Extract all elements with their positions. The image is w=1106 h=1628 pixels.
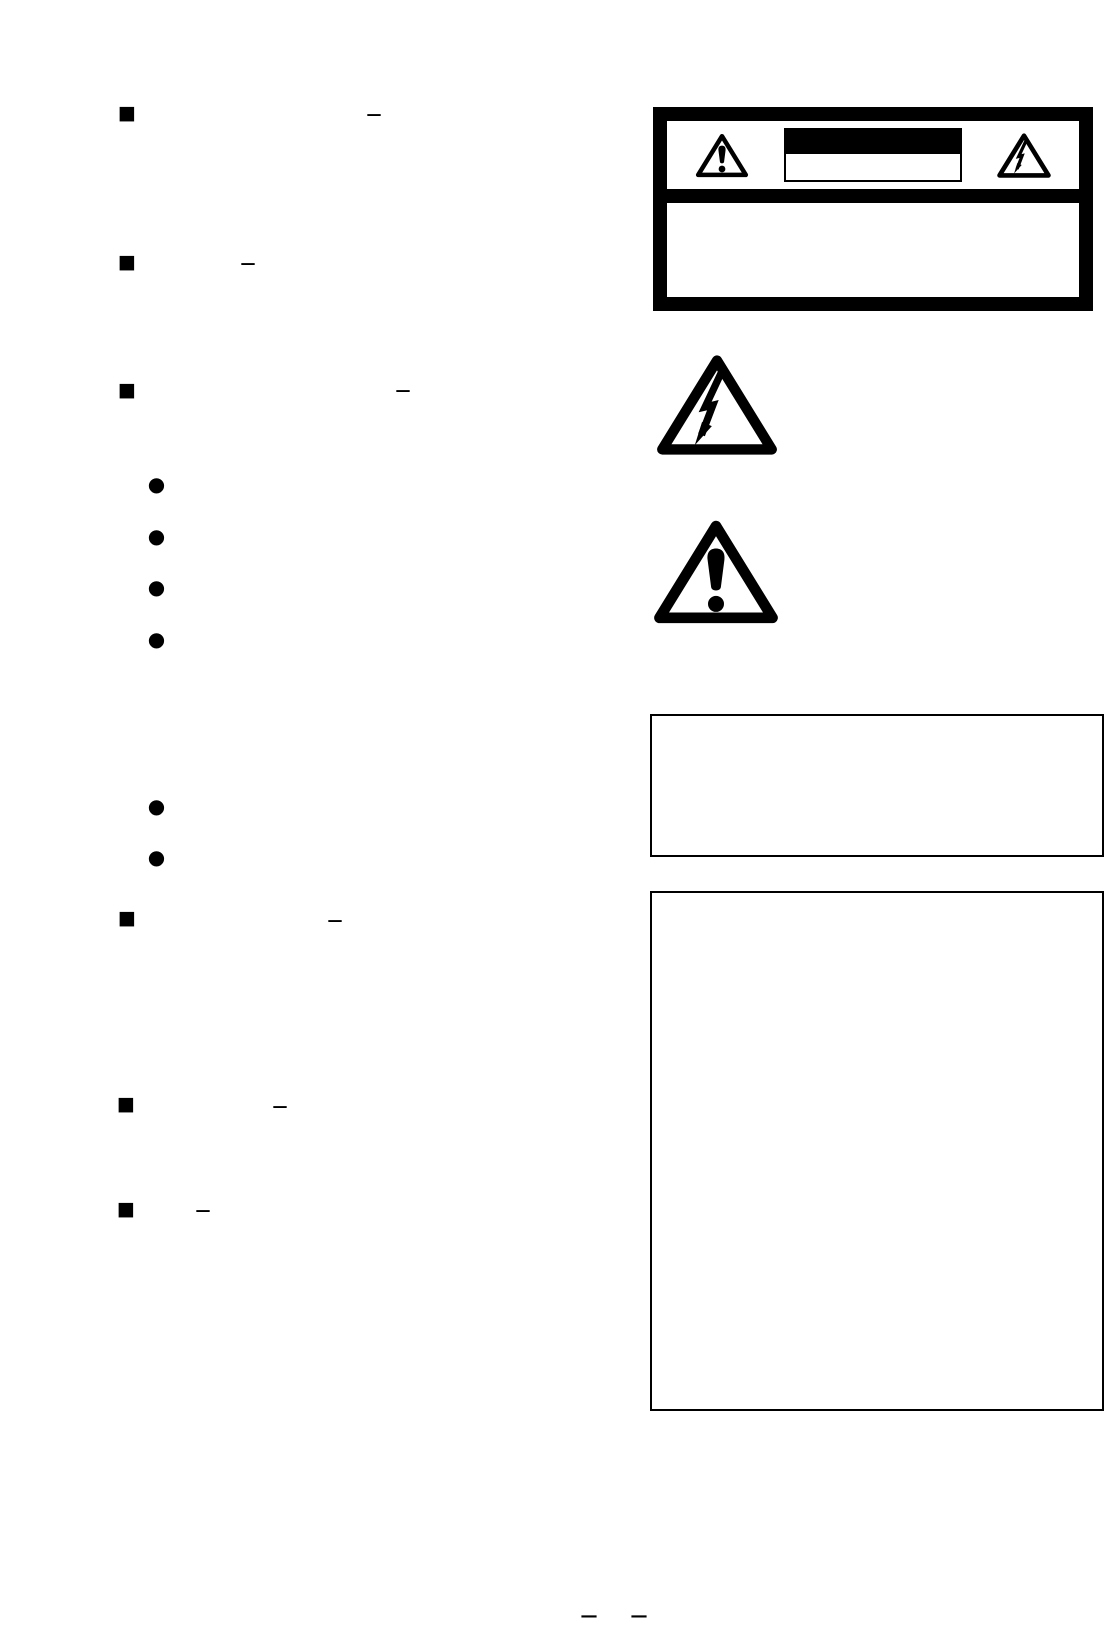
section-bullet: ■ <box>119 1202 133 1216</box>
footer-dash: — <box>580 1611 598 1621</box>
list-bullet: ● <box>150 850 163 863</box>
list-bullet: ● <box>150 477 163 490</box>
high-voltage-flash-triangle-icon <box>996 132 1052 180</box>
redaction-dash: — <box>195 1203 211 1217</box>
list-bullet: ● <box>150 799 163 812</box>
redaction-dash: — <box>272 1099 288 1113</box>
redacted-title-bar <box>784 128 962 152</box>
caution-warning-panel <box>653 107 1093 311</box>
redaction-dash: — <box>366 107 382 121</box>
document-page: ■ — ■ — ■ — ● ● ● ● ● ● ■ — ■ — ■ — <box>0 0 1106 1628</box>
caution-title-block <box>784 128 962 182</box>
notice-box <box>650 714 1104 857</box>
notice-box <box>650 891 1104 1411</box>
redaction-dash: — <box>327 913 343 927</box>
section-bullet: ■ <box>120 383 134 397</box>
redaction-dash: — <box>395 383 411 397</box>
list-bullet: ● <box>150 580 163 593</box>
caution-panel-header <box>667 121 1079 189</box>
exclamation-triangle-icon <box>695 132 749 180</box>
redaction-dash: — <box>240 256 256 270</box>
section-bullet: ■ <box>119 1097 133 1111</box>
section-bullet: ■ <box>120 911 134 925</box>
exclamation-triangle-icon <box>652 517 780 629</box>
section-bullet: ■ <box>120 255 134 269</box>
high-voltage-flash-triangle-icon <box>655 352 779 460</box>
list-bullet: ● <box>150 529 163 542</box>
footer-dash: — <box>630 1611 648 1621</box>
caution-panel-divider <box>667 189 1079 203</box>
caution-panel-body <box>667 203 1079 297</box>
section-bullet: ■ <box>120 106 134 120</box>
empty-subtitle-box <box>784 152 962 182</box>
list-bullet: ● <box>150 632 163 645</box>
